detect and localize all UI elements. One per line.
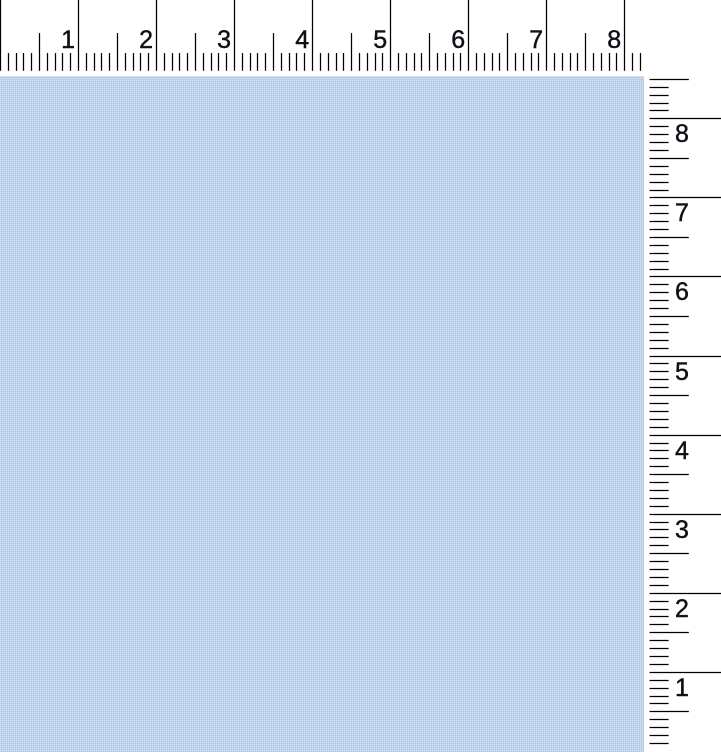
svg-text:1: 1 bbox=[675, 674, 689, 702]
svg-text:7: 7 bbox=[675, 199, 689, 227]
svg-text:7: 7 bbox=[529, 26, 543, 54]
svg-text:4: 4 bbox=[295, 26, 309, 54]
svg-text:5: 5 bbox=[373, 26, 387, 54]
svg-text:1: 1 bbox=[61, 26, 75, 54]
svg-text:3: 3 bbox=[675, 516, 689, 544]
svg-text:6: 6 bbox=[675, 278, 689, 306]
svg-text:6: 6 bbox=[451, 26, 465, 54]
svg-text:8: 8 bbox=[607, 26, 621, 54]
svg-text:8: 8 bbox=[675, 120, 689, 148]
svg-text:2: 2 bbox=[139, 26, 153, 54]
svg-text:3: 3 bbox=[217, 26, 231, 54]
svg-text:4: 4 bbox=[675, 437, 689, 465]
svg-text:5: 5 bbox=[675, 358, 689, 386]
svg-text:2: 2 bbox=[675, 595, 689, 623]
